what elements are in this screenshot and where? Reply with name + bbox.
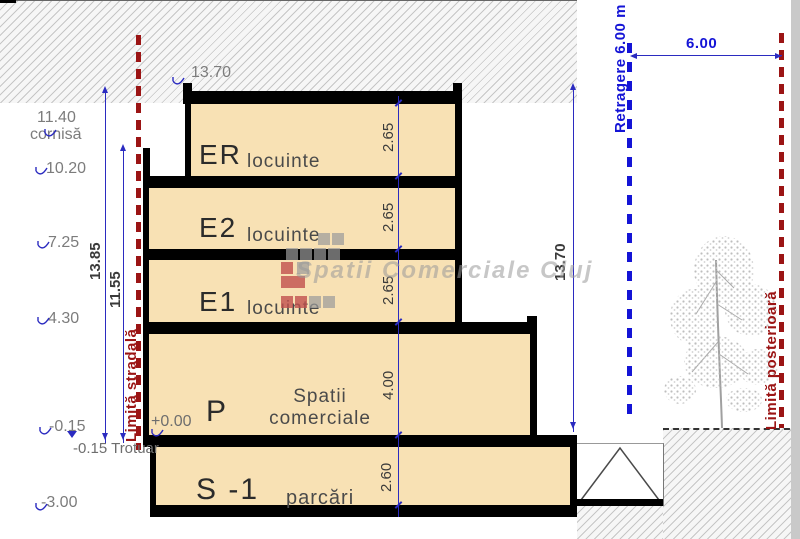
slab-4-30	[143, 322, 537, 334]
storey-height-E2: 2.65	[380, 203, 397, 232]
level-value-10-20: 10.20	[46, 160, 86, 178]
dim-arrow-icon	[775, 53, 782, 59]
level-marker-icon	[170, 76, 186, 88]
wall-P-right	[530, 326, 537, 437]
wall-E2-left	[143, 180, 149, 252]
level-marker-icon	[42, 128, 58, 140]
wall-P-left	[143, 326, 149, 437]
setback-dim-line	[632, 55, 782, 56]
floor-use-E2: locuinte	[247, 225, 321, 247]
street-limit-label: Limită stradală	[123, 329, 140, 442]
dim-value-11-55: 11.55	[107, 271, 124, 308]
level-marker-icon	[35, 240, 51, 252]
floor-code-S1: S -1	[196, 473, 259, 507]
section-drawing: Limită stradală Limită posterioară Retra…	[0, 0, 800, 539]
dim-arrow-icon	[102, 433, 108, 440]
setback-dim-value: 6.00	[686, 35, 717, 52]
level-marker-icon	[37, 426, 53, 438]
ramp-triangle-icon	[577, 444, 663, 504]
watermark-text: Spatii Comerciale Cluj	[296, 257, 593, 285]
level-marker-icon	[149, 428, 165, 440]
dim-value-13-85: 13.85	[87, 242, 104, 280]
floor-use-P: Spatii comerciale	[255, 386, 385, 430]
level-value-4-30: 4.30	[48, 310, 79, 328]
slab-0-00	[143, 435, 577, 447]
level-marker-solid-icon	[66, 430, 78, 439]
ground-soil-right	[663, 428, 800, 539]
level-marker-icon	[35, 316, 51, 328]
dim-arrow-icon	[102, 86, 108, 93]
dim-arrow-icon	[570, 83, 576, 90]
level-value-11-40: 11.40	[37, 109, 76, 127]
dim-line-13-85	[105, 90, 106, 443]
dim-arrow-icon	[120, 144, 126, 151]
roof-level-value: 13.70	[191, 64, 231, 82]
floor-code-E1: E1	[199, 286, 237, 318]
wall-ER-left	[185, 96, 191, 178]
floor-code-ER: ER	[199, 139, 242, 171]
floor-use-S1: parcări	[286, 487, 354, 510]
storey-height-S1: 2.60	[378, 463, 395, 492]
level-value-7-25: 7.25	[48, 234, 79, 252]
wall-E2-right	[455, 180, 462, 252]
dim-arrow-icon	[630, 53, 637, 59]
floor-code-E2: E2	[199, 212, 237, 244]
level-marker-icon	[33, 502, 49, 514]
cornice-parapet-11-40	[143, 148, 150, 177]
wall-ER-right	[455, 96, 462, 178]
terrace-parapet-right	[527, 316, 537, 323]
dim-arrow-icon	[120, 433, 126, 440]
sidewalk-label: -0.15 Trotuar	[73, 440, 159, 457]
lightwell-base-slab	[573, 499, 663, 506]
wall-E1-left	[143, 253, 149, 324]
ground-soil-left	[0, 0, 577, 103]
floor-use-ER: locuinte	[247, 151, 321, 173]
level-marker-icon	[33, 166, 49, 178]
floor-use-P-line2: comerciale	[255, 408, 385, 430]
dim-arrow-icon	[570, 422, 576, 429]
roof-slab	[183, 91, 462, 104]
ground-soil-under-lightwell	[577, 505, 663, 539]
lightwell	[577, 443, 664, 506]
page-right-band	[791, 0, 800, 539]
setback-label: Retragere 6.00 m	[612, 4, 629, 133]
floor-use-P-line1: Spatii	[255, 386, 385, 408]
storey-height-ER: 2.65	[380, 123, 397, 152]
roof-parapet-right	[453, 83, 462, 93]
storey-dim-line	[398, 96, 399, 517]
page-edge-artifact	[0, 0, 16, 3]
floor-code-P: P	[206, 395, 228, 429]
rear-limit-label: Limită posterioară	[763, 291, 780, 430]
